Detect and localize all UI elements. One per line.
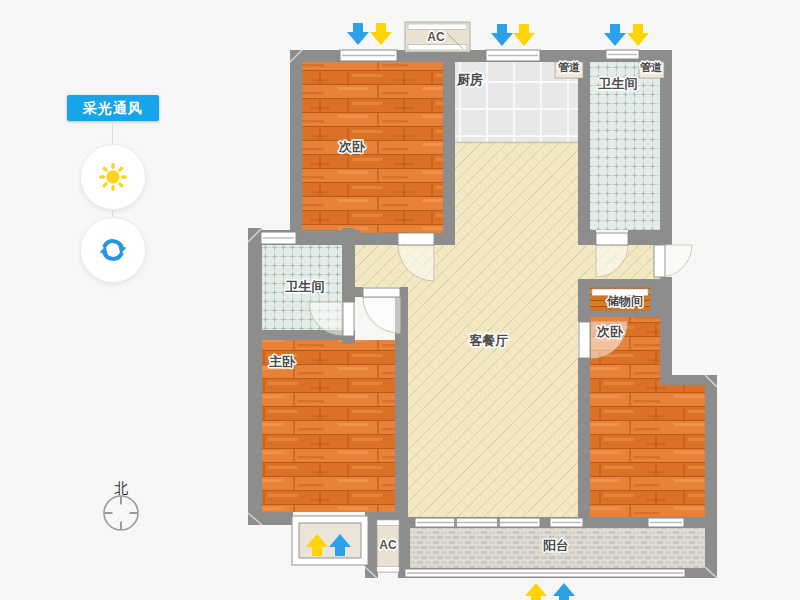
bay-window <box>292 516 368 565</box>
door-bathroom-left <box>343 302 354 336</box>
ac-unit-top: AC <box>405 22 470 52</box>
room-bedroom-top[interactable] <box>302 62 443 233</box>
compass-icon <box>95 493 149 537</box>
mode-badge[interactable]: 采光通风 <box>67 95 159 121</box>
label-balcony: 阳台 <box>543 538 569 553</box>
label-bedroom-right: 次卧 <box>596 324 624 339</box>
label-master-bedroom: 主卧 <box>269 354 296 369</box>
ac-top-label: AC <box>427 30 445 44</box>
label-bedroom-top: 次卧 <box>338 139 366 154</box>
wind-arrow-icon <box>491 24 513 46</box>
daylight-arrow-icon <box>627 24 649 46</box>
connector-line <box>112 121 113 144</box>
refresh-button[interactable] <box>80 217 146 283</box>
label-storage: 储物间 <box>606 294 643 308</box>
refresh-icon <box>91 228 135 272</box>
label-bathroom-left: 卫生间 <box>285 279 325 294</box>
sun-icon <box>91 155 135 199</box>
floorplan-viewer: AC AC <box>0 0 800 600</box>
door-arc <box>363 297 400 333</box>
door-bathroom-top <box>596 233 628 245</box>
label-bathroom-top: 卫生间 <box>598 76 638 91</box>
label-duct-left: 管道 <box>557 61 581 73</box>
label-living-dining: 客餐厅 <box>469 333 509 348</box>
wind-arrow-icon <box>604 24 626 46</box>
door-master-bedroom <box>363 288 400 297</box>
wind-arrow-icon <box>553 583 575 600</box>
daylight-button[interactable] <box>80 144 146 210</box>
label-kitchen: 厨房 <box>456 72 483 87</box>
door-bedroom-top <box>398 233 434 245</box>
entry-door <box>654 245 665 277</box>
door-bedroom-right <box>579 322 590 358</box>
daylight-arrow-icon <box>370 23 392 45</box>
daylight-arrow-icon <box>513 24 535 46</box>
ac-unit-bottom: AC <box>377 520 399 572</box>
ac-bottom-label: AC <box>379 538 397 552</box>
daylight-arrow-icon <box>525 583 547 600</box>
wind-arrow-icon <box>347 23 369 45</box>
label-duct-right: 管道 <box>639 61 663 73</box>
